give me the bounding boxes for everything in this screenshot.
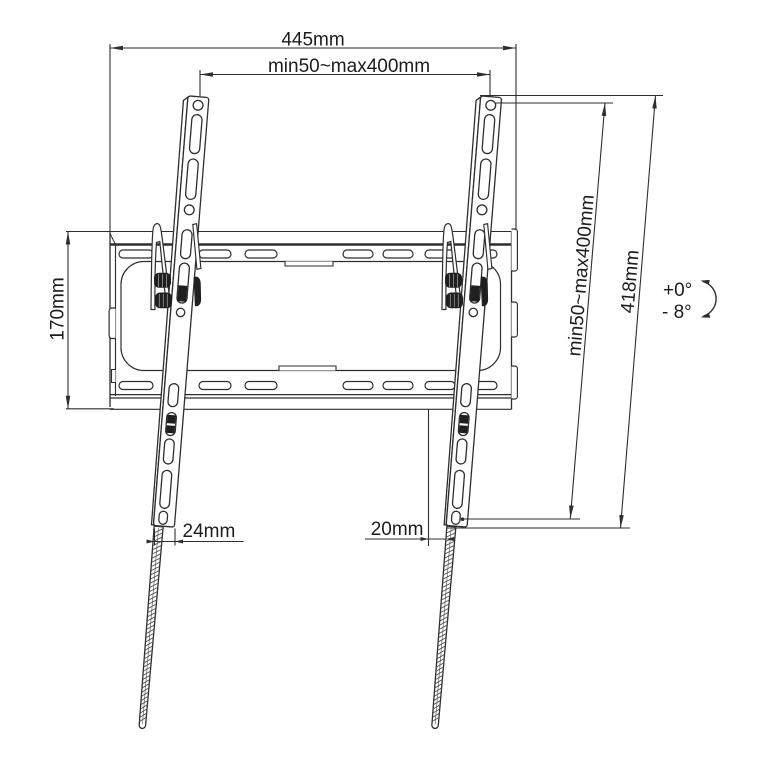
svg-text:+0°: +0° <box>663 280 692 301</box>
svg-text:- 8°: - 8° <box>662 302 692 323</box>
svg-text:min50~max400mm: min50~max400mm <box>268 56 430 77</box>
svg-text:20mm: 20mm <box>371 519 424 540</box>
svg-text:445mm: 445mm <box>281 30 344 51</box>
svg-text:170mm: 170mm <box>48 277 69 340</box>
svg-text:24mm: 24mm <box>183 521 236 542</box>
